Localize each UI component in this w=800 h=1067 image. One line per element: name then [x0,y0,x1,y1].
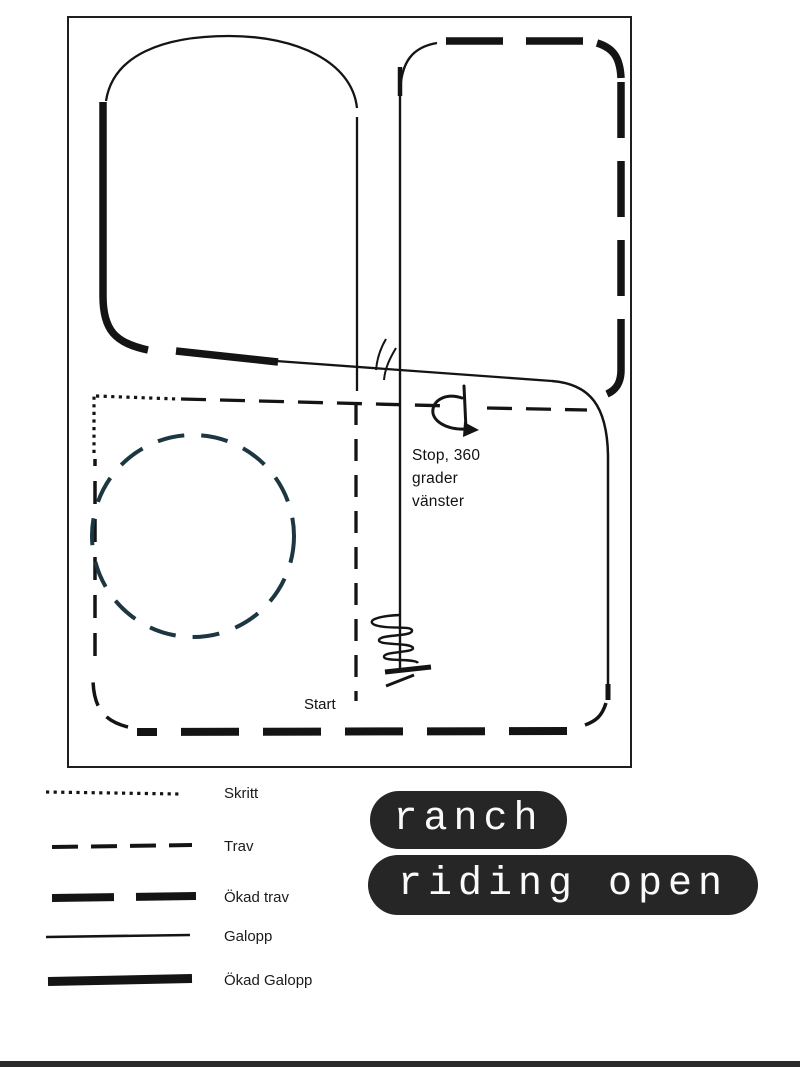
title-badge-ranch: ranch [370,791,567,849]
title-badge-riding-open-text: riding open [398,862,728,907]
start-label: Start [304,696,336,713]
legend-row-trav: Trav [44,835,253,857]
dashed-line-sample [44,839,196,853]
bottom-edge-bar [0,1061,800,1067]
dotted-line-sample [44,786,196,800]
legend-row-okad-galopp: Ökad Galopp [44,969,312,991]
legend-label-skritt: Skritt [224,785,258,802]
stop-note-line-1: Stop, 360 [412,444,480,467]
title-badge-ranch-text: ranch [393,797,543,842]
thin-solid-line-sample [44,929,196,943]
legend-label-galopp: Galopp [224,928,272,945]
legend-row-galopp: Galopp [44,925,272,947]
title-badge-riding-open: riding open [368,855,758,915]
legend-label-okad-galopp: Ökad Galopp [224,972,312,989]
thick-solid-line-sample [44,973,196,987]
stop-note-line-3: vänster [412,490,480,513]
thick-dashed-line-sample [44,890,196,904]
arena-frame [68,17,631,767]
stop-360-note: Stop, 360 grader vänster [412,444,480,513]
legend-row-skritt: Skritt [44,782,258,804]
legend-label-okad-trav: Ökad trav [224,889,289,906]
stop-note-line-2: grader [412,467,480,490]
legend-label-trav: Trav [224,838,253,855]
middle-dashed-right [487,408,587,410]
legend-row-okad-trav: Ökad trav [44,886,289,908]
